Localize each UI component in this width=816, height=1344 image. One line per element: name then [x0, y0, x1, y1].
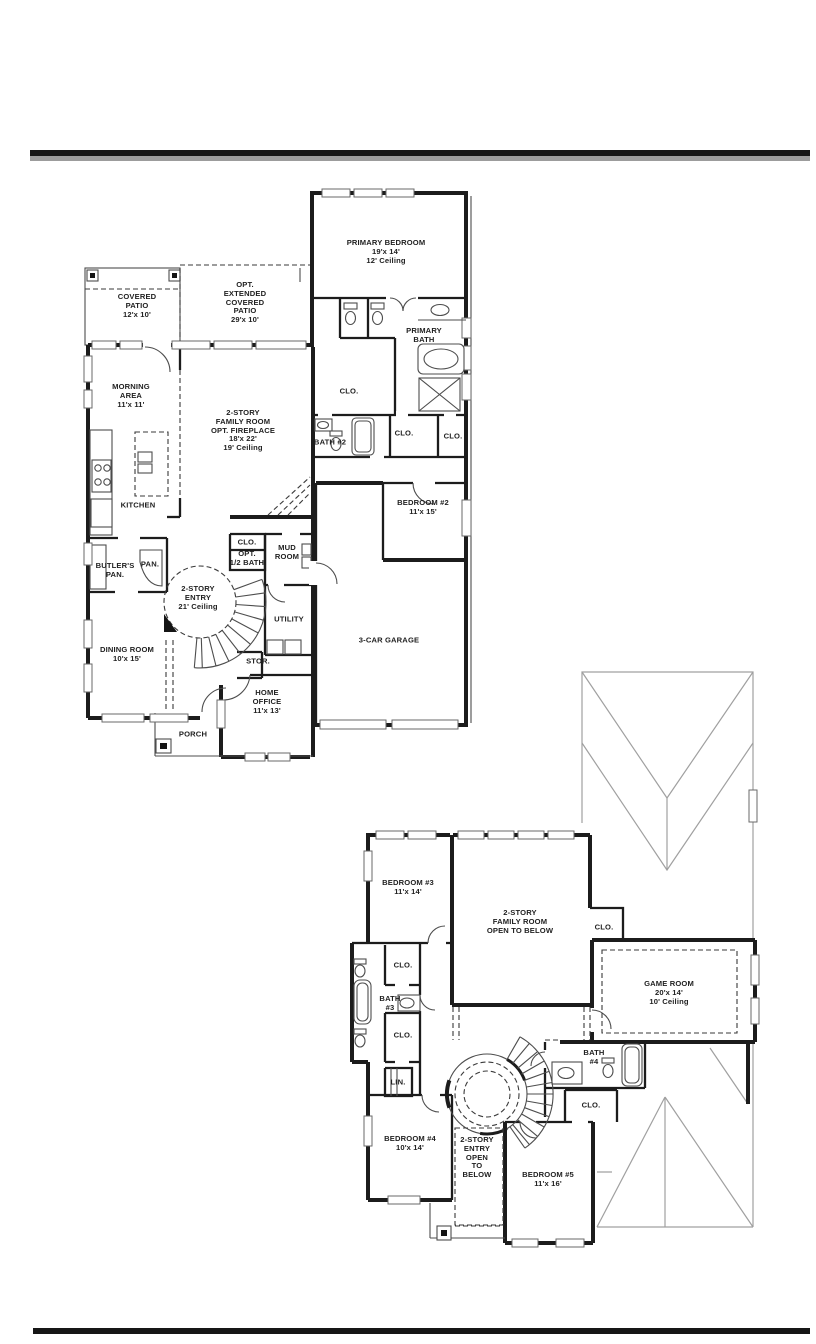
room-label-clo-bath3-upper: CLO. [394, 962, 413, 971]
room-label-morning-area: MORNING AREA 11'x 11' [112, 383, 150, 409]
room-label-utility: UTILITY [274, 616, 304, 625]
room-label-covered-patio: COVERED PATIO 12'x 10' [118, 293, 157, 319]
room-label-clo-a: CLO. [395, 430, 414, 439]
room-label-family-room: 2-STORY FAMILY ROOM OPT. FIREPLACE 18'x … [211, 409, 275, 453]
room-label-entry-open: 2-STORY ENTRY OPEN TO BELOW [460, 1136, 494, 1180]
room-label-mud-room: MUD ROOM [275, 544, 299, 562]
room-label-stor: STOR. [246, 658, 270, 667]
room-label-clo-b: CLO. [444, 433, 463, 442]
room-label-bedroom4: BEDROOM #4 10'x 14' [384, 1135, 436, 1153]
room-label-opt-half-bath: OPT. 1/2 BATH [230, 550, 264, 568]
room-label-family-open: 2-STORY FAMILY ROOM OPEN TO BELOW [487, 909, 553, 935]
room-label-clo-family: CLO. [595, 924, 614, 933]
room-label-bath2: BATH #2 [314, 439, 346, 448]
first-floor-plan [84, 189, 471, 761]
room-label-butlers-pan: BUTLER'S PAN. [96, 562, 135, 580]
room-label-entry: 2-STORY ENTRY 21' Ceiling [178, 585, 217, 611]
room-label-garage: 3-CAR GARAGE [359, 637, 419, 646]
room-label-clo-hall: CLO. [238, 539, 257, 548]
room-label-primary-bath: PRIMARY BATH [406, 327, 442, 345]
room-label-primary-clo: CLO. [340, 388, 359, 397]
floor-plan-page: COVERED PATIO 12'x 10' OPT. EXTENDED COV… [0, 0, 816, 1344]
room-label-pan: PAN. [141, 561, 159, 570]
room-label-bedroom3: BEDROOM #3 11'x 14' [382, 879, 434, 897]
room-label-bedroom5: BEDROOM #5 11'x 16' [522, 1171, 574, 1189]
room-label-clo-bath3-lower: CLO. [394, 1032, 413, 1041]
room-label-game-room: GAME ROOM 20'x 14' 10' Ceiling [644, 980, 694, 1006]
room-label-home-office: HOME OFFICE 11'x 13' [253, 689, 282, 715]
room-label-porch: PORCH [179, 731, 207, 740]
room-label-ext-patio: OPT. EXTENDED COVERED PATIO 29'x 10' [224, 281, 267, 325]
room-label-clo-bedroom5: CLO. [582, 1102, 601, 1111]
room-label-dining-room: DINING ROOM 10'x 15' [100, 646, 154, 664]
room-label-lin: LIN. [391, 1079, 406, 1088]
room-label-bath4: BATH #4 [583, 1049, 604, 1067]
room-label-kitchen: KITCHEN [121, 502, 156, 511]
room-label-bath3: BATH #3 [379, 995, 400, 1013]
room-label-bedroom2: BEDROOM #2 11'x 15' [397, 499, 449, 517]
room-label-primary-bedroom: PRIMARY BEDROOM 19'x 14' 12' Ceiling [347, 239, 426, 265]
